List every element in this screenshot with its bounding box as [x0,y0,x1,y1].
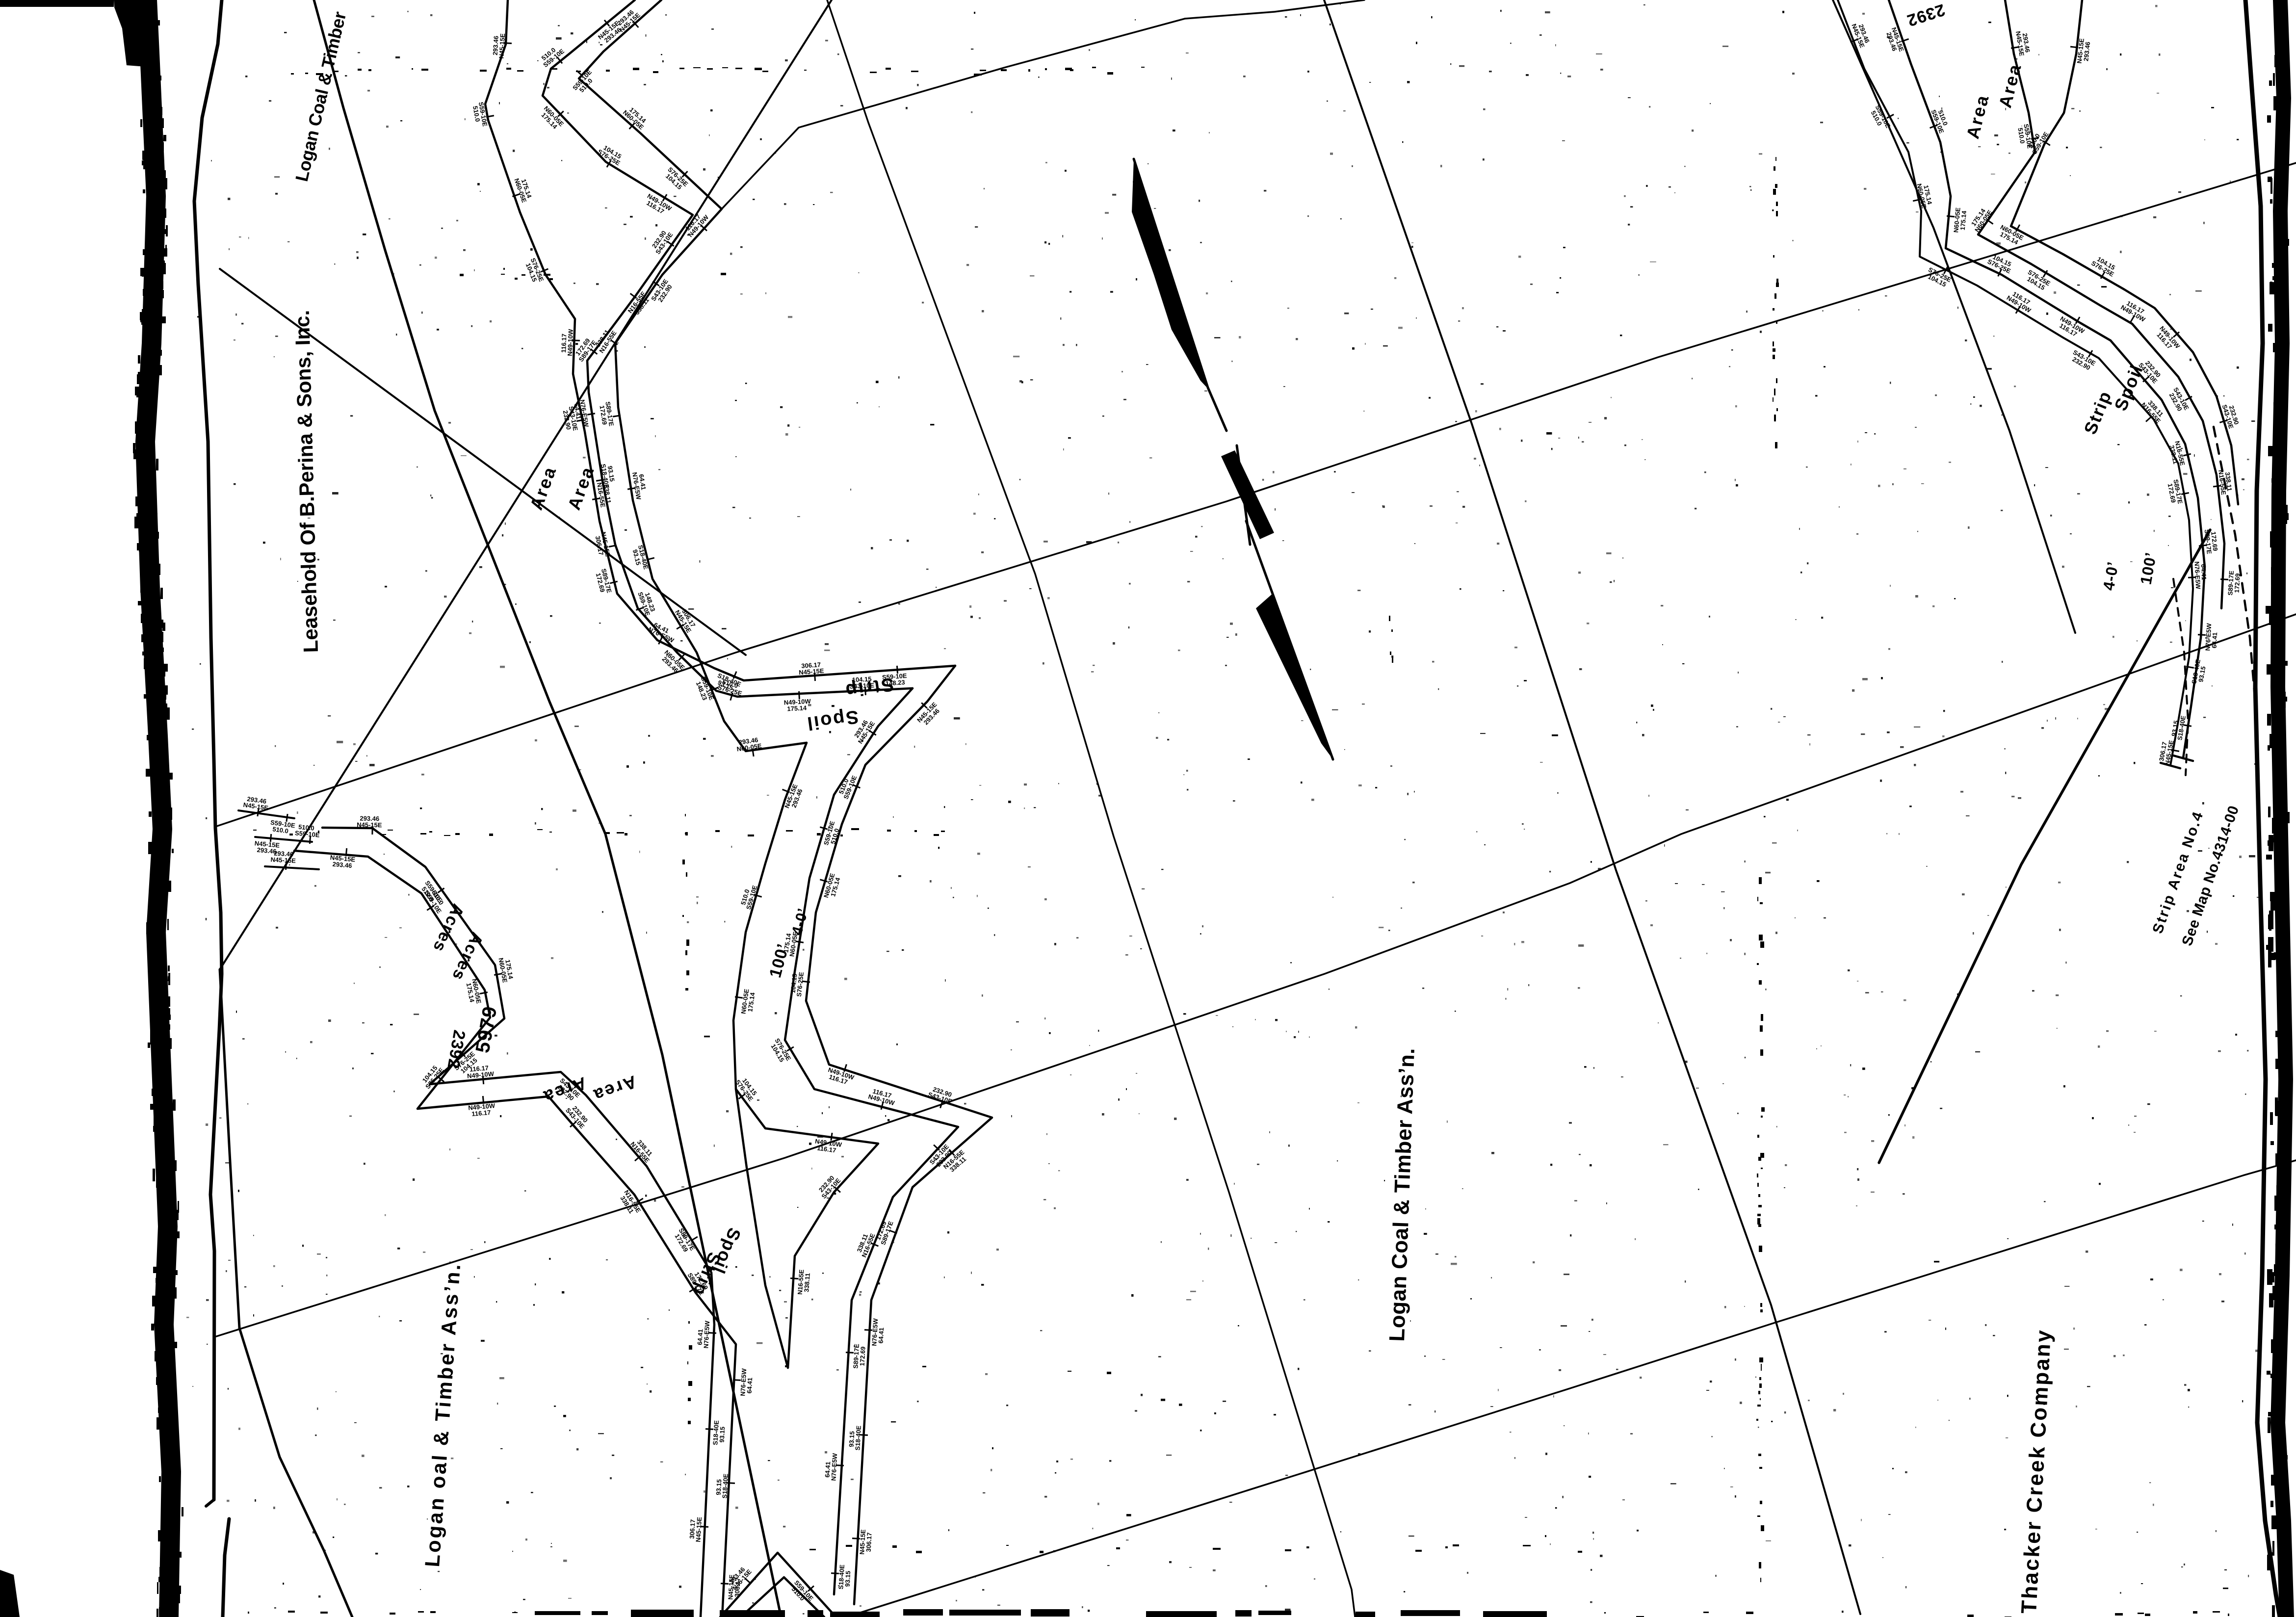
svg-text:64.41: 64.41 [696,1329,704,1345]
svg-text:93.15: 93.15 [718,1426,727,1442]
svg-text:293.46: 293.46 [274,850,293,858]
svg-text:510.0: 510.0 [298,823,315,832]
svg-text:306.17: 306.17 [865,1532,873,1552]
svg-text:64.41: 64.41 [2211,632,2219,648]
svg-text:338.11: 338.11 [803,1273,811,1292]
svg-text:293.46: 293.46 [492,36,500,55]
svg-text:93.15: 93.15 [848,1431,856,1447]
svg-text:64.41: 64.41 [877,1327,886,1343]
svg-text:116.17: 116.17 [560,334,568,353]
svg-text:293.46: 293.46 [360,815,379,823]
svg-text:306.17: 306.17 [688,1519,697,1539]
svg-text:93.15: 93.15 [844,1570,852,1587]
svg-text:93.15: 93.15 [715,1479,723,1495]
svg-text:64.41: 64.41 [746,1377,754,1393]
svg-text:64.41: 64.41 [824,1461,832,1478]
svg-text:172.69: 172.69 [859,1346,867,1366]
svg-text:306.17: 306.17 [801,661,821,670]
svg-text:172.69: 172.69 [2233,573,2242,593]
svg-text:64.41: 64.41 [2200,564,2208,580]
svg-text:175.14: 175.14 [787,704,807,712]
